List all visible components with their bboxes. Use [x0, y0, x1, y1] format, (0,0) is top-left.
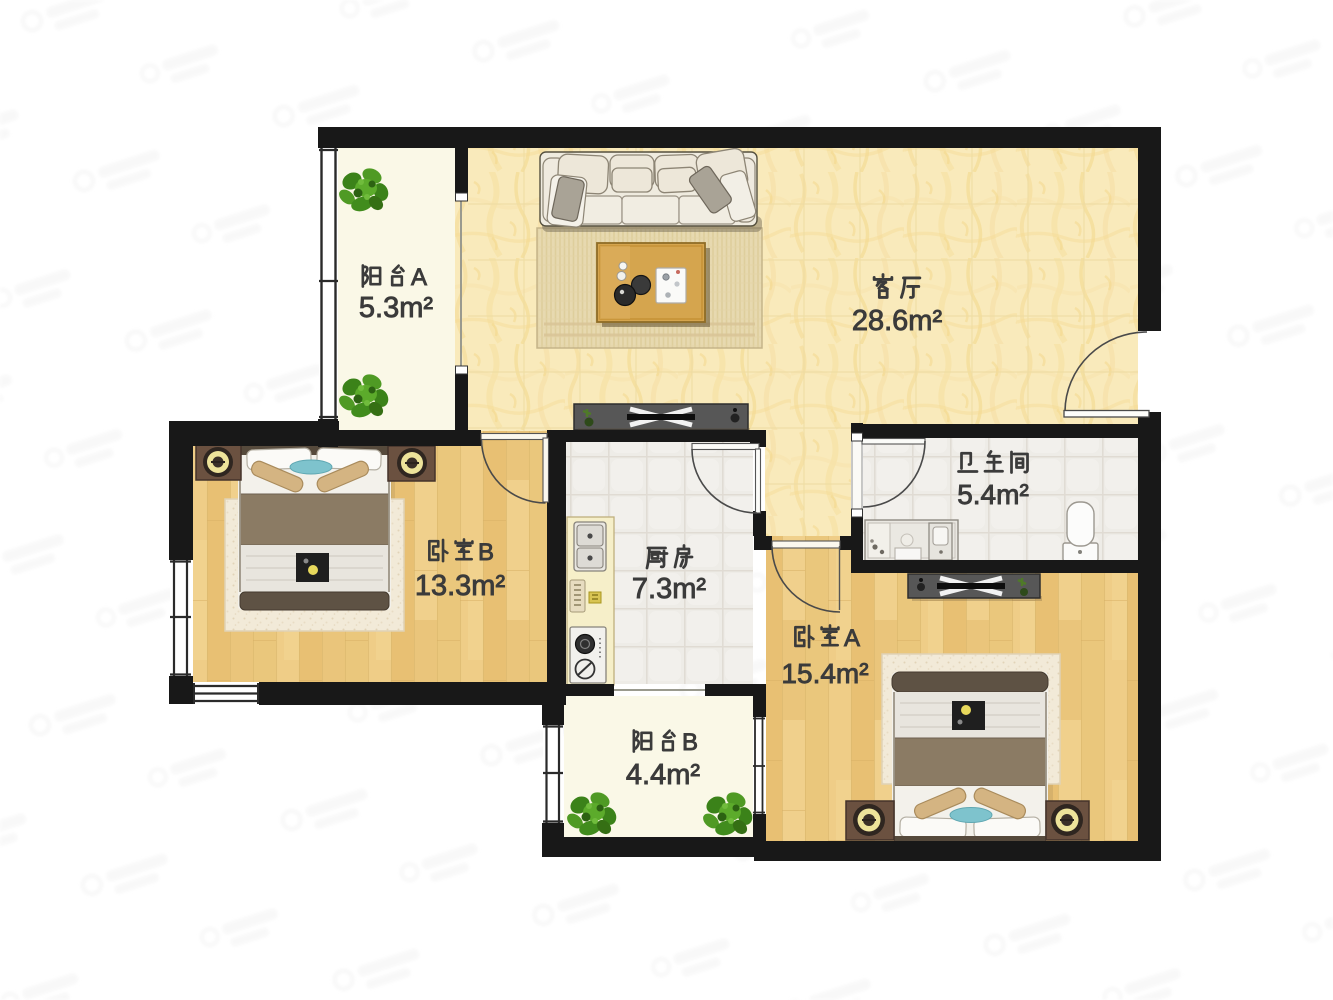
svg-text:4.4m²: 4.4m²: [626, 759, 700, 791]
svg-text:13.3m²: 13.3m²: [415, 570, 506, 602]
svg-text:B: B: [682, 729, 698, 756]
svg-text:28.6m²: 28.6m²: [852, 305, 943, 337]
svg-text:5.4m²: 5.4m²: [957, 479, 1029, 510]
svg-text:B: B: [478, 539, 494, 566]
svg-text:5.3m²: 5.3m²: [359, 292, 433, 324]
svg-text:A: A: [411, 264, 427, 291]
svg-text:A: A: [844, 625, 860, 652]
svg-text:7.3m²: 7.3m²: [632, 573, 706, 605]
svg-text:15.4m²: 15.4m²: [781, 658, 868, 689]
